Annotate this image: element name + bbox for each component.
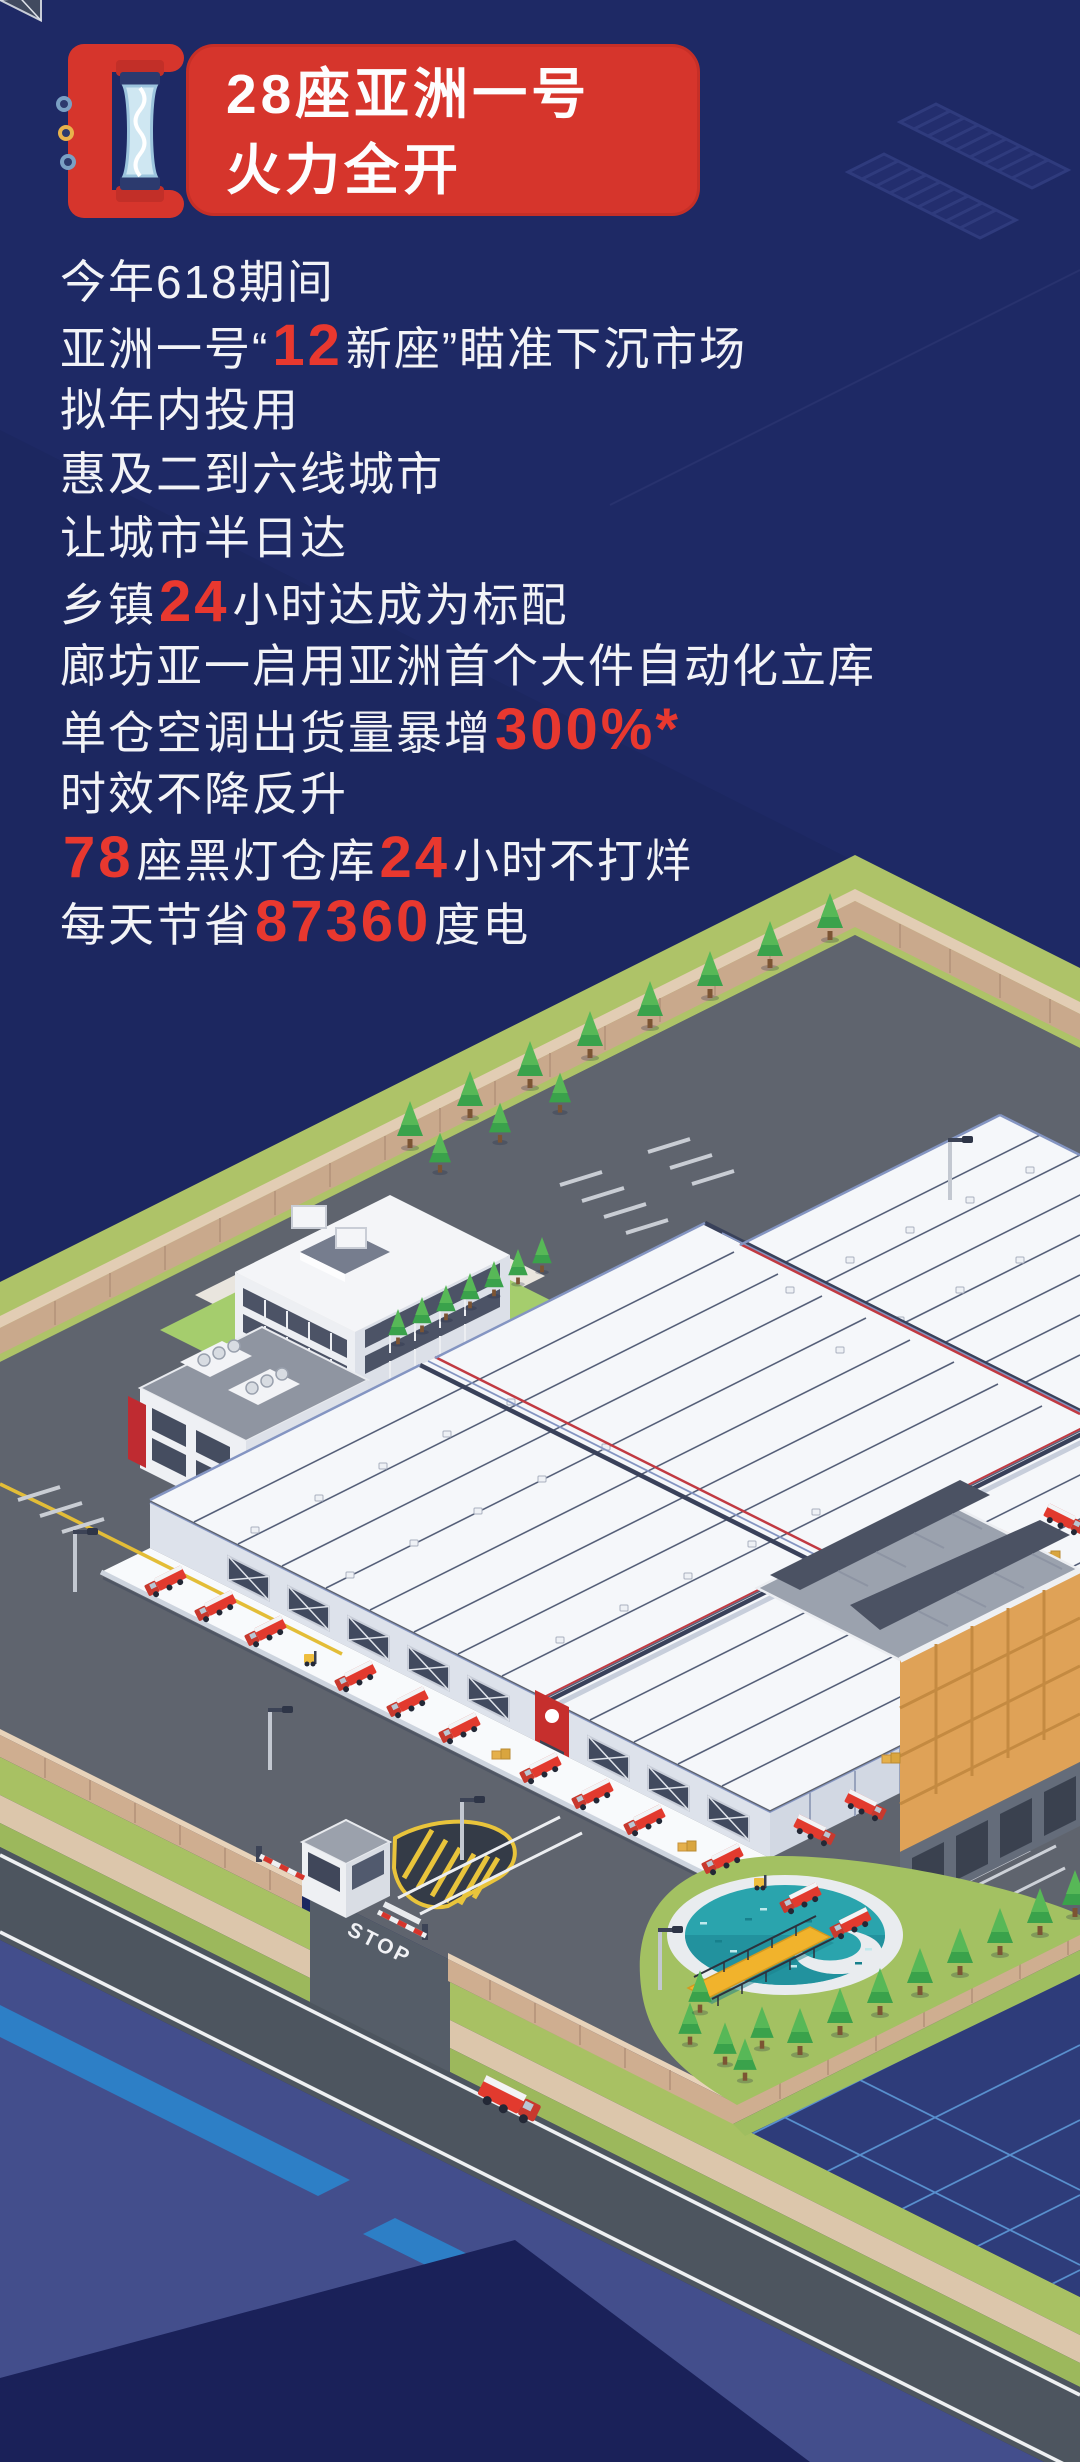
stat-highlight-number: 300%*: [492, 697, 684, 762]
title-banner: 28座亚洲一号 火力全开: [186, 44, 700, 216]
heat-tube-icon: [50, 36, 210, 226]
title-line-2: 火力全开: [226, 132, 700, 208]
stat-line: 时效不降反升: [60, 762, 1080, 826]
stats-block: 今年618期间亚洲一号“12新座”瞄准下沉市场拟年内投用惠及二到六线城市让城市半…: [60, 250, 1080, 954]
stat-highlight-number: 87360: [252, 889, 434, 954]
stat-line: 单仓空调出货量暴增300%*: [60, 698, 1080, 762]
stat-text: 乡镇: [60, 579, 156, 631]
stat-highlight-number: 24: [377, 825, 454, 890]
stat-line: 惠及二到六线城市: [60, 442, 1080, 506]
stat-text: 小时不打烊: [453, 835, 693, 887]
stat-text: 单仓空调出货量暴增: [60, 707, 492, 759]
stat-highlight-number: 24: [156, 569, 233, 634]
stat-line: 乡镇24小时达成为标配: [60, 570, 1080, 634]
stat-text: 亚洲一号“: [60, 323, 269, 375]
stat-text: 时效不降反升: [60, 768, 348, 820]
stat-text: 每天节省: [60, 899, 252, 951]
stat-highlight-number: 78: [60, 825, 137, 890]
stat-text: 新座”瞄准下沉市场: [346, 323, 747, 375]
stat-line: 每天节省87360度电: [60, 890, 1080, 954]
stat-text: 让城市半日达: [60, 512, 348, 564]
stat-line: 廊坊亚一启用亚洲首个大件自动化立库: [60, 634, 1080, 698]
stat-line: 亚洲一号“12新座”瞄准下沉市场: [60, 314, 1080, 378]
stat-text: 小时达成为标配: [233, 579, 569, 631]
stat-line: 拟年内投用: [60, 378, 1080, 442]
stat-line: 让城市半日达: [60, 506, 1080, 570]
stat-text: 廊坊亚一启用亚洲首个大件自动化立库: [60, 640, 876, 692]
stat-highlight-number: 12: [269, 313, 346, 378]
stat-text: 今年618期间: [60, 256, 335, 308]
stat-line: 今年618期间: [60, 250, 1080, 314]
red-sign: [128, 1396, 146, 1468]
vent-grate-icon: [848, 104, 1068, 238]
stat-text: 惠及二到六线城市: [60, 448, 444, 500]
stat-text: 拟年内投用: [60, 384, 300, 436]
stat-text: 度电: [434, 899, 530, 951]
stat-text: 座黑灯仓库: [137, 835, 377, 887]
stat-line: 78座黑灯仓库24小时不打烊: [60, 826, 1080, 890]
infographic-page: { "banner": { "title_line1": "28座亚洲一号", …: [0, 0, 1080, 2462]
title-line-1: 28座亚洲一号: [226, 56, 700, 132]
